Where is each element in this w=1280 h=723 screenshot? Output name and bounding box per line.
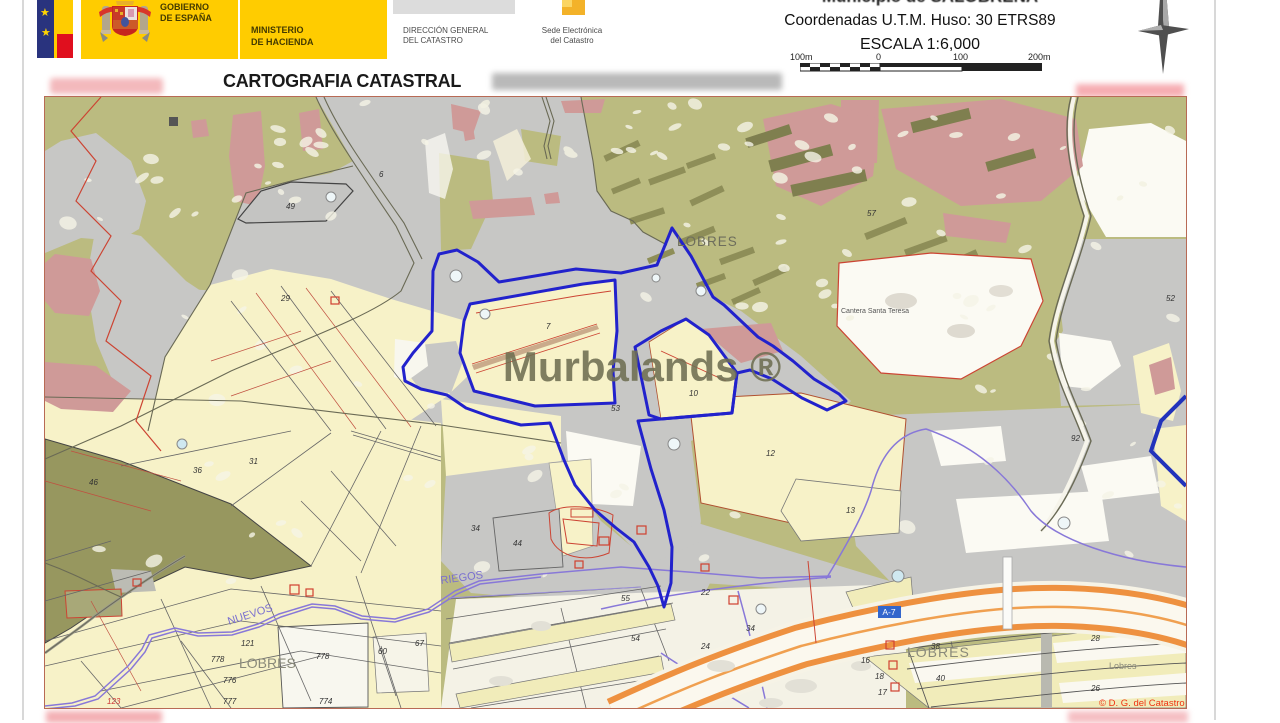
svg-text:LOBRES: LOBRES <box>677 234 738 249</box>
svg-text:44: 44 <box>513 539 522 548</box>
svg-text:36: 36 <box>193 466 202 475</box>
svg-text:Cantera Santa Teresa: Cantera Santa Teresa <box>841 308 909 315</box>
svg-text:774: 774 <box>319 697 333 706</box>
svg-text:7: 7 <box>546 322 551 331</box>
svg-text:776: 776 <box>223 676 237 685</box>
svg-text:38: 38 <box>931 642 940 651</box>
svg-text:49: 49 <box>286 202 295 211</box>
svg-text:34: 34 <box>746 624 755 633</box>
svg-text:778: 778 <box>316 652 330 661</box>
svg-text:18: 18 <box>875 672 884 681</box>
svg-text:29: 29 <box>280 294 290 303</box>
svg-text:17: 17 <box>878 688 887 697</box>
svg-text:13: 13 <box>846 506 855 515</box>
svg-text:46: 46 <box>89 478 98 487</box>
svg-text:A-7: A-7 <box>882 607 896 617</box>
svg-text:26: 26 <box>1090 684 1100 693</box>
svg-text:16: 16 <box>861 656 870 665</box>
svg-text:22: 22 <box>700 588 710 597</box>
svg-text:54: 54 <box>631 634 640 643</box>
svg-text:777: 777 <box>223 697 237 706</box>
svg-text:60: 60 <box>378 647 387 656</box>
svg-text:67: 67 <box>415 639 424 648</box>
svg-text:12: 12 <box>766 449 775 458</box>
svg-text:123: 123 <box>107 697 121 706</box>
svg-text:28: 28 <box>1090 634 1100 643</box>
svg-text:24: 24 <box>700 642 710 651</box>
svg-text:LOBRES: LOBRES <box>239 655 296 671</box>
svg-text:121: 121 <box>241 639 254 648</box>
svg-text:53: 53 <box>611 404 620 413</box>
svg-text:778: 778 <box>211 655 225 664</box>
svg-text:10: 10 <box>689 389 698 398</box>
svg-text:Lobres: Lobres <box>1109 661 1137 671</box>
svg-text:Murbalands ®: Murbalands ® <box>503 343 781 390</box>
svg-text:55: 55 <box>621 594 630 603</box>
svg-text:57: 57 <box>867 209 876 218</box>
svg-text:40: 40 <box>936 674 945 683</box>
svg-text:© D. G. del Catastro: © D. G. del Catastro <box>1099 698 1185 709</box>
svg-text:92: 92 <box>1071 434 1080 443</box>
svg-text:52: 52 <box>1166 294 1175 303</box>
svg-text:6: 6 <box>379 170 384 179</box>
svg-text:34: 34 <box>471 524 480 533</box>
svg-text:31: 31 <box>249 457 258 466</box>
